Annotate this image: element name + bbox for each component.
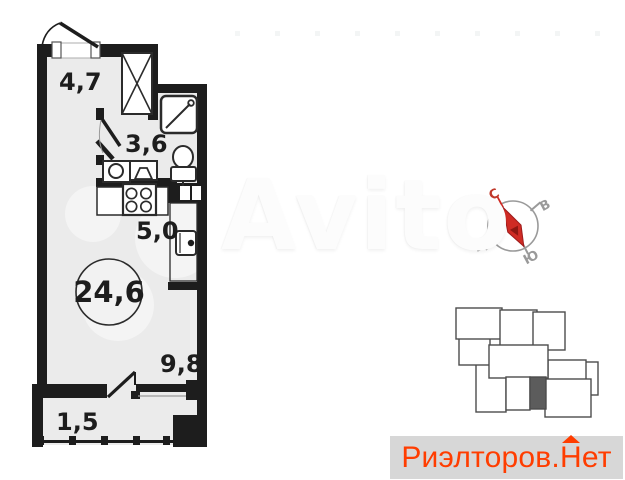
- wardrobe-icon: [122, 53, 152, 114]
- apartment-location-highlight: [530, 377, 546, 409]
- room-area-label-balcony: 1,5: [56, 408, 99, 436]
- cabinet-icon: [130, 161, 157, 180]
- room-area-label-bathroom: 3,6: [125, 130, 168, 158]
- screenshot-root: 4,7 3,6 5,0 9,8 1,5 24,6 С В Ю: [0, 0, 625, 480]
- building-footprint-map: [456, 308, 598, 417]
- floor-plan: 4,7 3,6 5,0 9,8 1,5 24,6: [32, 23, 215, 447]
- room-area-label-hallway: 4,7: [59, 68, 102, 96]
- compass-east-label: В: [537, 197, 553, 215]
- toilet-icon: [171, 146, 196, 186]
- realtor-logo: Риэлторов.Нет: [390, 436, 623, 479]
- floor-plan-canvas: 4,7 3,6 5,0 9,8 1,5 24,6 С В Ю: [0, 0, 625, 480]
- realtor-logo-suffix: ет: [582, 441, 612, 475]
- house-roof-icon: [562, 435, 580, 443]
- room-area-label-room: 9,8: [160, 350, 203, 378]
- washbasin-icon: [103, 161, 130, 182]
- room-area-label-kitchen: 5,0: [136, 217, 179, 245]
- compass-icon: С В Ю З: [472, 186, 554, 268]
- compass-west-label: З: [472, 238, 487, 256]
- stove-icon: [123, 184, 156, 215]
- realtor-logo-prefix: Риэлторов.: [401, 441, 560, 475]
- realtor-logo-roof-letter: Н: [560, 441, 582, 475]
- compass-south-label: Ю: [521, 248, 542, 268]
- shower-icon: [161, 96, 197, 133]
- watermark-dot-row: [235, 31, 600, 36]
- total-area-label: 24,6: [73, 275, 145, 309]
- washing-machine-icon: [176, 231, 196, 255]
